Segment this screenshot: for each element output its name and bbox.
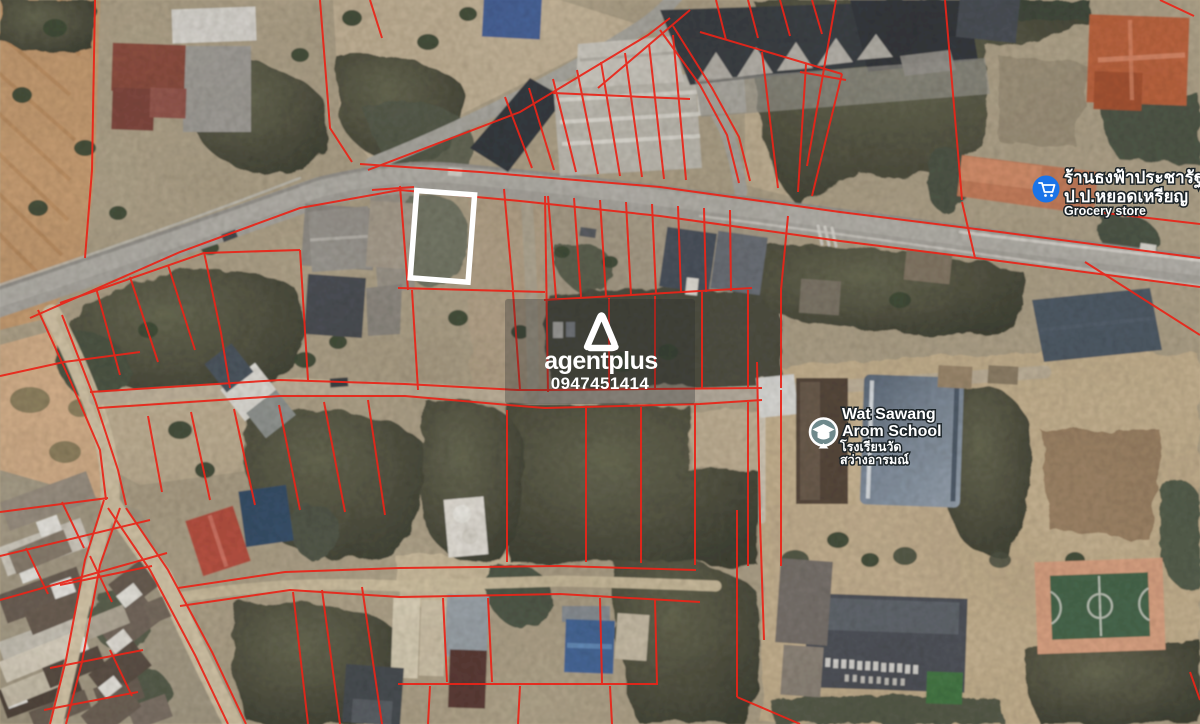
svg-text:agentplus: agentplus (544, 347, 658, 375)
svg-text:0947451414: 0947451414 (551, 374, 650, 393)
svg-text:Arom School: Arom School (842, 423, 942, 440)
svg-text:Grocery store: Grocery store (1064, 204, 1146, 218)
svg-text:ร้านธงฟ้าประชารัฐ: ร้านธงฟ้าประชารัฐ (1064, 168, 1200, 189)
svg-text:โรงเรียนวัด: โรงเรียนวัด (839, 439, 902, 454)
svg-text:สว่างอารมณ์: สว่างอารมณ์ (840, 452, 909, 467)
svg-text:Wat Sawang: Wat Sawang (842, 406, 936, 423)
